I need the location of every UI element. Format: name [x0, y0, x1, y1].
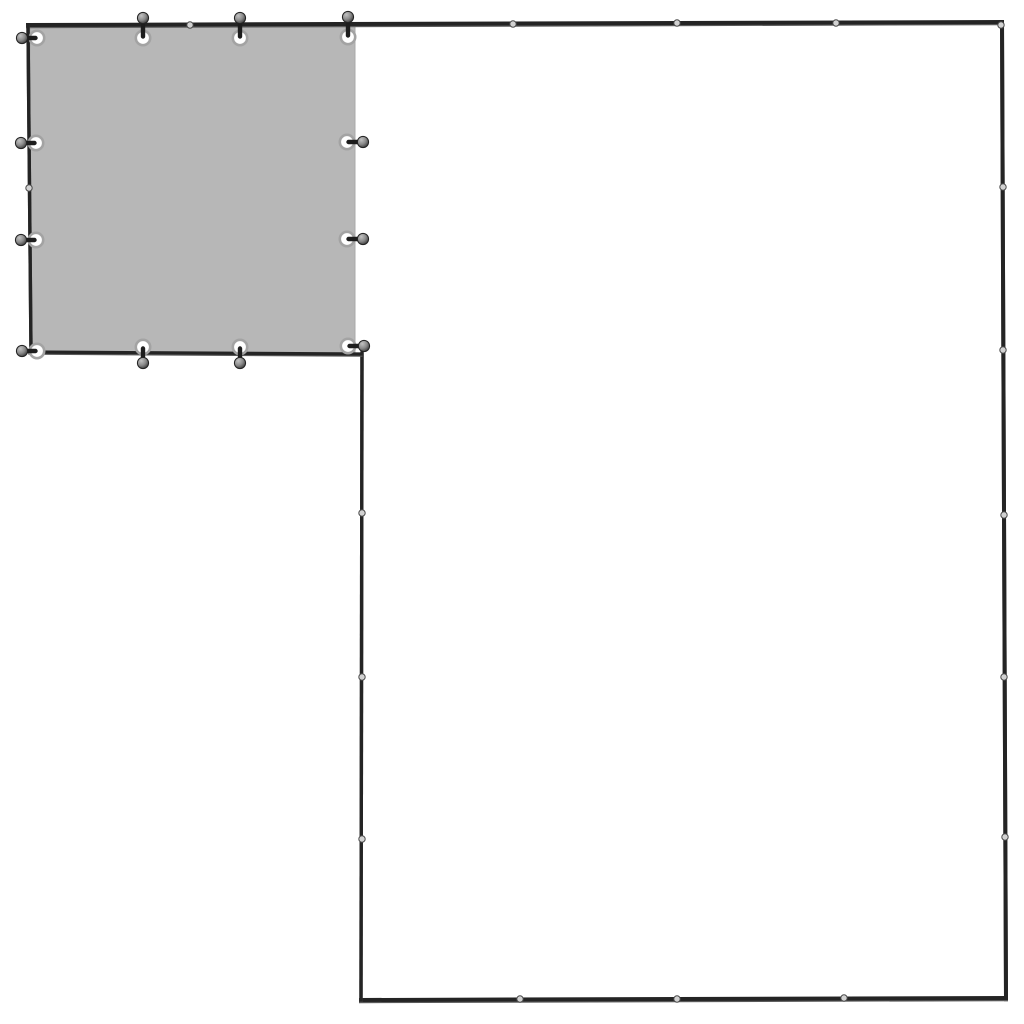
toggle-ball [16, 345, 27, 356]
product-image [0, 0, 1024, 1024]
rail-joint [1001, 512, 1007, 518]
rail-joint [998, 22, 1004, 28]
rail-joint [1000, 347, 1006, 353]
rail-joint [187, 22, 193, 28]
rail-joint [26, 185, 32, 191]
tarp-fastener [15, 136, 43, 150]
product-image-canvas [0, 0, 1024, 1024]
toggle-ball [357, 136, 368, 147]
toggle-ball [357, 233, 368, 244]
tarp-fastener [16, 344, 44, 358]
toggle-ball [15, 234, 26, 245]
rail-joint [510, 21, 516, 27]
rail-joint [833, 20, 839, 26]
rail-joint [359, 510, 365, 516]
rail-joint [674, 996, 680, 1002]
tarp-cover [30, 26, 355, 353]
tarp-bottom-rail [30, 352, 361, 354]
bottom-rail [361, 998, 1006, 1000]
toggle-ball [358, 340, 369, 351]
tarp-fastener [16, 31, 44, 45]
right-rail [1002, 22, 1006, 998]
tarp-rect [30, 26, 355, 353]
toggle-ball [16, 32, 27, 43]
rail-joint [841, 995, 847, 1001]
rail-joint [1001, 674, 1007, 680]
rail-joint [517, 996, 523, 1002]
rail-joint [1000, 184, 1006, 190]
rail-joint [674, 20, 680, 26]
rail-joint [359, 836, 365, 842]
toggle-ball [342, 11, 353, 22]
rail-joint [359, 674, 365, 680]
toggle-ball [234, 12, 245, 23]
toggle-ball [137, 12, 148, 23]
toggle-ball [15, 137, 26, 148]
toggle-ball [234, 357, 245, 368]
tarp-fastener [15, 233, 43, 247]
toggle-ball [137, 357, 148, 368]
rail-joint [1002, 834, 1008, 840]
